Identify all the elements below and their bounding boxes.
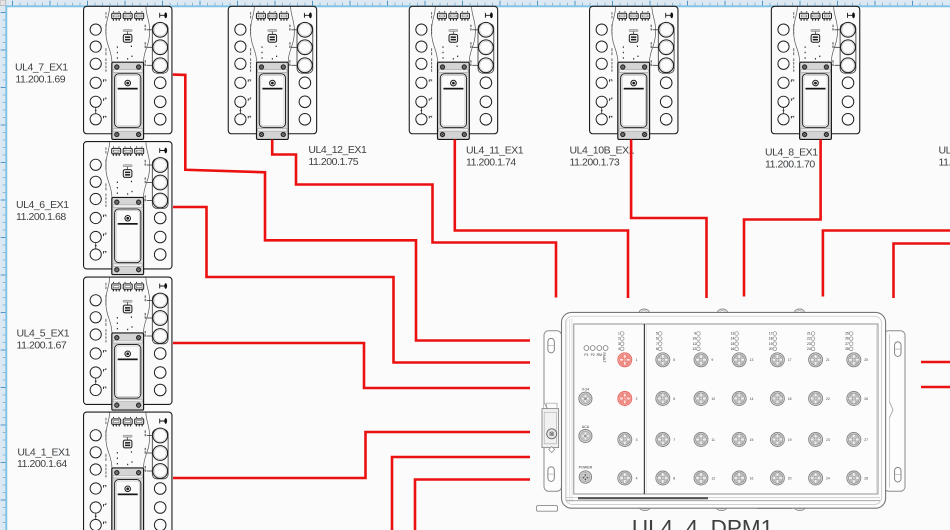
svg-text:20: 20	[788, 476, 792, 480]
svg-text:15: 15	[731, 342, 735, 346]
svg-text:17: 17	[788, 358, 792, 362]
svg-text:11.200.1.73: 11.200.1.73	[570, 156, 620, 168]
svg-text:3: 3	[618, 342, 620, 346]
svg-text:ACA: ACA	[582, 425, 590, 429]
svg-text:UL4_5_EX1: UL4_5_EX1	[17, 328, 70, 340]
svg-text:26: 26	[864, 397, 868, 401]
svg-text:12: 12	[692, 347, 696, 351]
svg-text:V-24: V-24	[582, 388, 589, 392]
svg-text:UL4_11_EX1: UL4_11_EX1	[466, 145, 524, 157]
svg-text:20: 20	[769, 347, 773, 351]
svg-text:FAULT: FAULT	[602, 353, 606, 363]
svg-text:11.200.1.71: 11.200.1.71	[939, 156, 950, 168]
svg-text:RM: RM	[597, 353, 602, 357]
svg-text:12: 12	[711, 476, 715, 480]
svg-text:POWER: POWER	[579, 465, 593, 469]
svg-text:27: 27	[864, 438, 868, 442]
svg-text:1: 1	[636, 358, 638, 362]
svg-text:25: 25	[845, 332, 849, 336]
svg-text:5: 5	[673, 358, 675, 362]
svg-text:11.200.1.69: 11.200.1.69	[15, 73, 65, 85]
svg-text:26: 26	[845, 337, 849, 341]
svg-text:1: 1	[618, 332, 620, 336]
svg-text:UL4_1_EX1: UL4_1_EX1	[17, 446, 70, 458]
svg-text:8: 8	[656, 347, 658, 351]
svg-text:11.200.1.75: 11.200.1.75	[308, 156, 358, 168]
svg-text:P1: P1	[584, 353, 588, 357]
svg-text:13: 13	[750, 358, 754, 362]
svg-text:28: 28	[845, 347, 849, 351]
svg-text:23: 23	[807, 342, 811, 346]
svg-text:UL4_9_EX1: UL4_9_EX1	[939, 145, 950, 157]
svg-text:2: 2	[636, 397, 638, 401]
svg-text:19: 19	[788, 438, 792, 442]
svg-text:UL4_10B_EX1: UL4_10B_EX1	[570, 145, 635, 157]
svg-text:21: 21	[807, 332, 811, 336]
svg-text:22: 22	[807, 337, 811, 341]
svg-text:11: 11	[693, 342, 697, 346]
svg-text:7: 7	[673, 438, 675, 442]
svg-text:11: 11	[711, 438, 715, 442]
svg-text:3: 3	[636, 438, 638, 442]
svg-text:5: 5	[656, 332, 658, 336]
svg-text:7: 7	[656, 342, 658, 346]
svg-text:6: 6	[656, 337, 658, 341]
svg-text:25: 25	[864, 358, 868, 362]
svg-text:11.200.1.68: 11.200.1.68	[16, 211, 66, 223]
svg-text:19: 19	[769, 342, 773, 346]
svg-text:10: 10	[692, 337, 696, 341]
svg-text:UL4_12_EX1: UL4_12_EX1	[308, 144, 367, 156]
svg-text:22: 22	[826, 397, 830, 401]
svg-text:27: 27	[845, 342, 849, 346]
svg-text:21: 21	[826, 358, 830, 362]
svg-text:6: 6	[673, 397, 675, 401]
svg-text:11.200.1.67: 11.200.1.67	[17, 340, 67, 352]
svg-text:9: 9	[694, 332, 696, 336]
svg-text:UL4_4_DPM1: UL4_4_DPM1	[632, 515, 773, 530]
svg-text:11.200.1.74: 11.200.1.74	[466, 156, 516, 168]
svg-text:4: 4	[636, 476, 638, 480]
svg-text:11.200.1.70: 11.200.1.70	[765, 158, 815, 170]
svg-text:UL4_8_EX1: UL4_8_EX1	[765, 147, 818, 159]
svg-text:P2: P2	[591, 353, 595, 357]
svg-text:11.200.1.64: 11.200.1.64	[17, 458, 67, 470]
svg-text:UL4_7_EX1: UL4_7_EX1	[15, 62, 68, 74]
svg-text:9: 9	[711, 358, 713, 362]
svg-text:14: 14	[731, 337, 735, 341]
svg-text:14: 14	[750, 397, 754, 401]
svg-text:18: 18	[769, 337, 773, 341]
svg-text:UL4_6_EX1: UL4_6_EX1	[16, 199, 69, 211]
svg-text:24: 24	[807, 347, 811, 351]
svg-text:24: 24	[826, 476, 830, 480]
svg-text:8: 8	[673, 476, 675, 480]
svg-text:13: 13	[731, 332, 735, 336]
svg-text:17: 17	[769, 332, 773, 336]
svg-text:16: 16	[731, 347, 735, 351]
svg-text:15: 15	[750, 438, 754, 442]
svg-text:23: 23	[826, 438, 830, 442]
svg-text:16: 16	[750, 476, 754, 480]
svg-text:2: 2	[618, 337, 620, 341]
svg-text:10: 10	[711, 397, 715, 401]
svg-text:18: 18	[788, 397, 792, 401]
svg-text:4: 4	[618, 347, 620, 351]
svg-text:28: 28	[864, 476, 868, 480]
